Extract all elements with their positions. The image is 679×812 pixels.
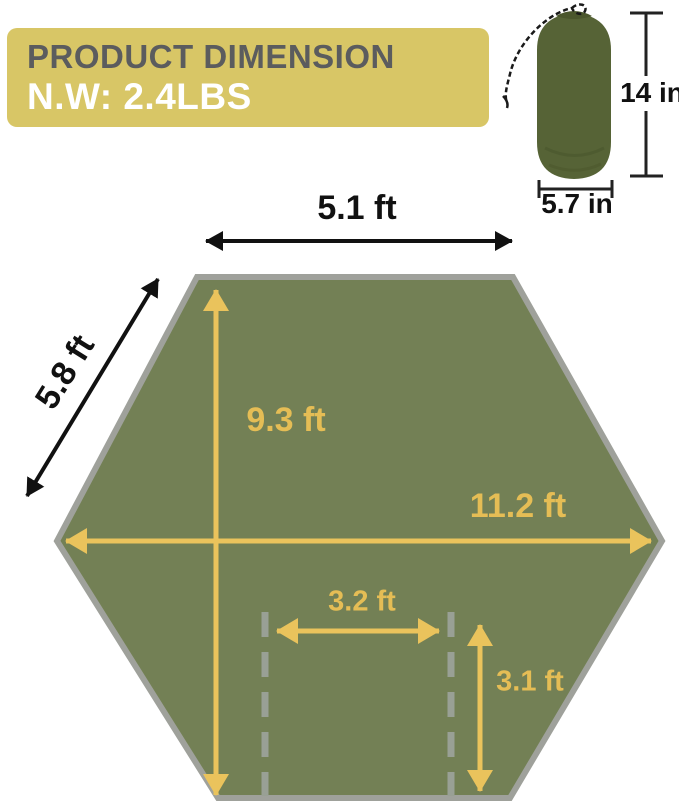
- stuff-sack: [503, 4, 611, 179]
- top-edge-label: 5.1 ft: [317, 191, 396, 225]
- tarp-hexagon: [57, 277, 662, 798]
- banner-title: PRODUCT DIMENSION: [27, 38, 489, 76]
- sack-width-label: 5.7 in: [541, 190, 613, 218]
- banner-weight-label: N.W: 2.4LBS: [27, 76, 489, 118]
- tarp-width-label: 11.2 ft: [470, 489, 566, 523]
- inner-height-label: 3.1 ft: [496, 668, 564, 697]
- banner: PRODUCT DIMENSION N.W: 2.4LBS: [7, 28, 489, 127]
- sack-height-label: 14 in: [620, 79, 679, 107]
- tarp-height-label: 9.3 ft: [246, 403, 325, 437]
- product-dimension-figure: PRODUCT DIMENSION N.W: 2.4LBS 5.1 ft 5.8…: [0, 0, 679, 812]
- inner-width-label: 3.2 ft: [328, 588, 396, 617]
